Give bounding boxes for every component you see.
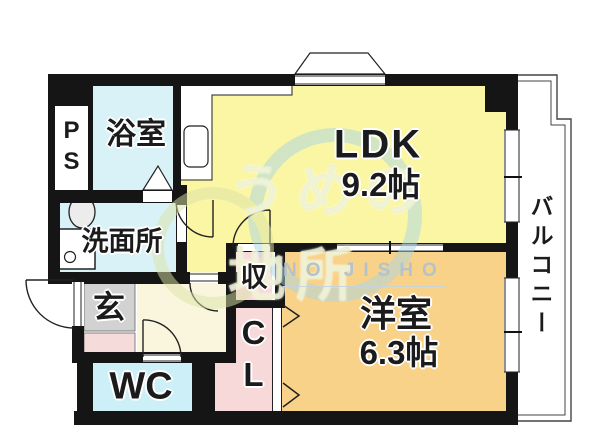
room-label-bathroom: 浴室 <box>106 109 166 153</box>
kitchen-sink-icon <box>184 126 208 167</box>
room-label-wc: WC <box>109 366 172 409</box>
room-size-ldk: 9.2帖 <box>342 158 421 206</box>
room-label-washroom: 洗面所 <box>82 220 163 259</box>
room-label-ps: PS <box>57 117 85 179</box>
hallway-fill <box>137 272 238 363</box>
room-size-western: 6.3帖 <box>360 326 439 374</box>
room-label-storage: 収 <box>241 256 268 295</box>
closet-door-track <box>272 308 282 411</box>
entrance-door-swing <box>26 280 74 328</box>
floorplan: うめの地所 NO JISHO PS 浴室 LDK 9.2帖 洗面所 玄 WC 収… <box>0 0 600 437</box>
drain-icon <box>65 252 76 263</box>
floorplan-drawing <box>0 0 600 437</box>
bay-projection <box>295 53 385 74</box>
room-ldk-corridor-fill <box>187 203 228 272</box>
room-label-closet: CL <box>234 314 272 398</box>
room-label-entrance: 玄 <box>93 282 125 328</box>
room-label-balcony: バルコニー <box>523 195 557 340</box>
